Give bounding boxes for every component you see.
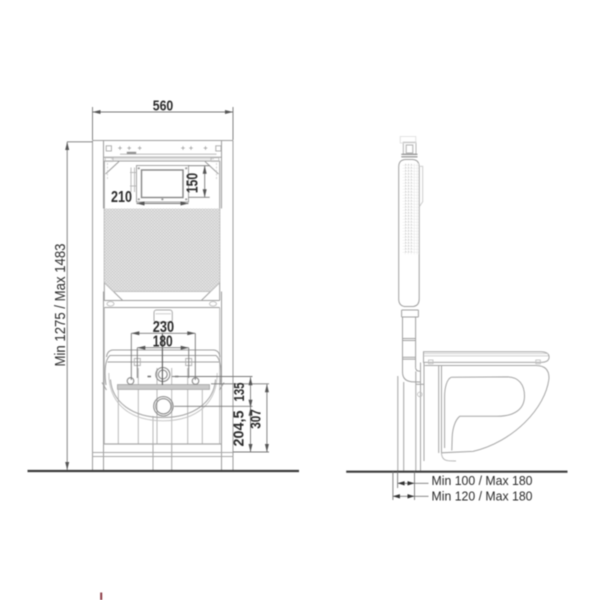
svg-text:307: 307 <box>247 409 264 429</box>
svg-text:210: 210 <box>111 189 132 206</box>
svg-text:Min 1275 / Max 1483: Min 1275 / Max 1483 <box>52 244 69 367</box>
svg-text:135: 135 <box>231 383 248 402</box>
svg-text:Min 120 / Max 180: Min 120 / Max 180 <box>432 489 533 504</box>
svg-text:Min 100 / Max 180: Min 100 / Max 180 <box>432 473 533 488</box>
svg-text:150: 150 <box>185 173 202 193</box>
svg-text:560: 560 <box>153 98 174 115</box>
svg-text:204,5: 204,5 <box>231 411 248 447</box>
svg-text:180: 180 <box>153 334 173 351</box>
